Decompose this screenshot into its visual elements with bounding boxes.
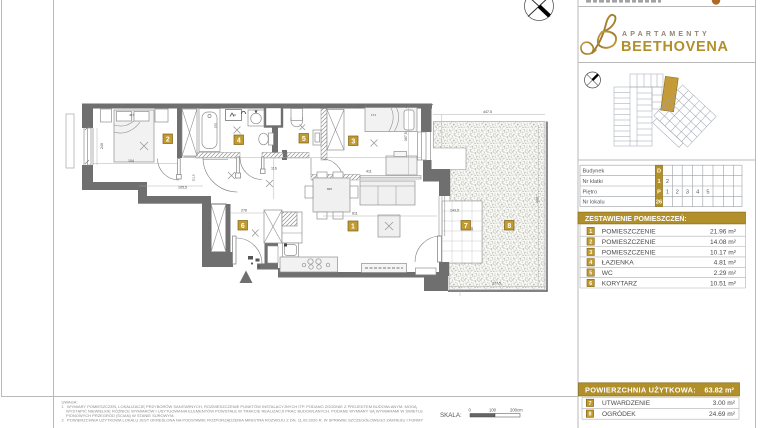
svg-text:2: 2	[666, 179, 669, 185]
svg-text:3.00 m²: 3.00 m²	[713, 400, 736, 407]
svg-text:2 POWIERZCHNIA UŻYTKOWA LOKA: 2 POWIERZCHNIA UŻYTKOWA LOKALU JEST OKRE…	[62, 418, 424, 423]
svg-text:OGRÓDEK: OGRÓDEK	[602, 409, 636, 418]
svg-text:Nr klatki: Nr klatki	[583, 179, 603, 185]
svg-text:181,5: 181,5	[208, 222, 212, 231]
svg-text:ŁAZIENKA: ŁAZIENKA	[602, 260, 634, 267]
svg-text:WC: WC	[602, 270, 613, 277]
svg-text:240: 240	[100, 143, 104, 149]
svg-text:Budynek: Budynek	[583, 169, 605, 175]
svg-text:1: 1	[666, 189, 669, 195]
svg-text:ZESTAWIENIE POMIESZCZEŃ:: ZESTAWIENIE POMIESZCZEŃ:	[585, 214, 687, 223]
svg-text:440: 440	[536, 197, 540, 203]
svg-text:1: 1	[657, 179, 660, 185]
svg-text:5: 5	[589, 271, 592, 277]
svg-text:4: 4	[237, 137, 241, 144]
svg-text:5: 5	[302, 136, 306, 143]
svg-text:276: 276	[241, 209, 247, 213]
svg-text:407: 407	[129, 113, 134, 117]
svg-text:116: 116	[271, 167, 277, 171]
svg-text:3: 3	[686, 189, 689, 195]
svg-text:BEETHOVENA: BEETHOVENA	[621, 39, 729, 55]
svg-text:D: D	[657, 169, 661, 175]
svg-text:367,5: 367,5	[404, 132, 408, 141]
svg-text:111,5: 111,5	[192, 174, 196, 181]
svg-text:171: 171	[371, 113, 376, 117]
svg-text:447,5: 447,5	[483, 110, 492, 114]
svg-text:63.82 m²: 63.82 m²	[704, 386, 734, 395]
svg-text:2: 2	[676, 189, 679, 195]
svg-text:104: 104	[128, 159, 134, 163]
svg-text:4: 4	[696, 189, 699, 195]
svg-text:105,5: 105,5	[178, 186, 187, 190]
svg-text:POWIERZCHNIA UŻYTKOWA:: POWIERZCHNIA UŻYTKOWA:	[585, 386, 696, 395]
svg-text:10.17 m²: 10.17 m²	[710, 249, 737, 256]
svg-text:1: 1	[589, 229, 592, 235]
svg-text:143,5: 143,5	[450, 209, 459, 213]
svg-text:200cm: 200cm	[510, 408, 523, 413]
svg-text:411: 411	[366, 169, 372, 173]
svg-text:6: 6	[241, 223, 245, 230]
svg-text:Piętro: Piętro	[583, 189, 598, 195]
svg-text:1: 1	[351, 224, 355, 231]
svg-text:7: 7	[589, 401, 592, 407]
svg-text:24.69 m²: 24.69 m²	[709, 411, 736, 418]
svg-text:10.51 m²: 10.51 m²	[710, 280, 737, 287]
svg-text:KORYTARZ: KORYTARZ	[602, 280, 637, 287]
svg-text:8: 8	[589, 412, 592, 418]
svg-text:P: P	[657, 189, 661, 195]
svg-text:575: 575	[214, 123, 218, 128]
svg-text:5: 5	[706, 189, 709, 195]
svg-text:825: 825	[327, 187, 332, 191]
svg-text:3: 3	[589, 250, 592, 256]
svg-text:2: 2	[589, 239, 592, 245]
svg-text:SKALA:: SKALA:	[440, 412, 462, 419]
svg-text:UTWARDZENIE: UTWARDZENIE	[602, 400, 651, 407]
svg-text:6: 6	[589, 281, 592, 287]
svg-text:26: 26	[656, 200, 662, 206]
svg-text:7: 7	[464, 223, 468, 230]
svg-text:611: 611	[352, 212, 358, 216]
svg-text:21.96 m²: 21.96 m²	[710, 229, 737, 236]
svg-text:POMIESZCZENIE: POMIESZCZENIE	[602, 229, 656, 236]
svg-text:100: 100	[489, 408, 497, 413]
svg-text:8: 8	[507, 223, 511, 230]
svg-text:Nr lokalu: Nr lokalu	[583, 200, 605, 206]
svg-text:POMIESZCZENIE: POMIESZCZENIE	[602, 249, 656, 256]
svg-text:2: 2	[166, 136, 170, 143]
svg-text:4: 4	[589, 260, 592, 266]
svg-text:4.81 m²: 4.81 m²	[714, 260, 737, 267]
svg-text:3: 3	[351, 138, 355, 145]
svg-text:APARTAMENTY: APARTAMENTY	[622, 31, 710, 38]
svg-text:14.08 m²: 14.08 m²	[710, 239, 737, 246]
svg-text:POMIESZCZENIE: POMIESZCZENIE	[602, 239, 656, 246]
svg-text:377,5: 377,5	[492, 282, 501, 286]
svg-text:2.29 m²: 2.29 m²	[714, 270, 737, 277]
